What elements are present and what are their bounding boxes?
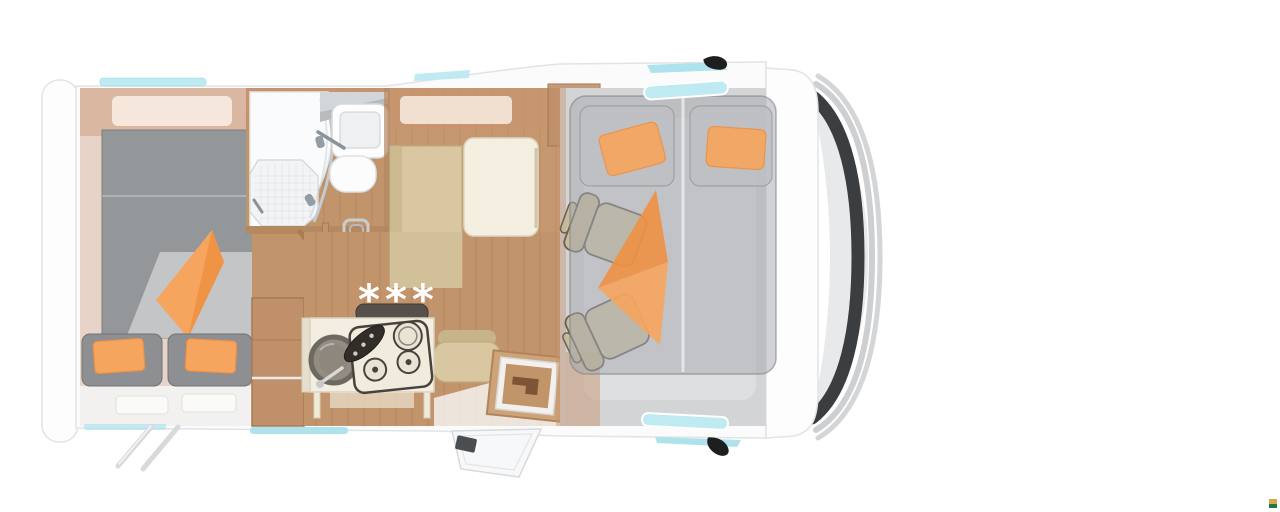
cab-partition-wall <box>556 88 566 426</box>
watermark-badge <box>1269 499 1277 508</box>
pillow-orange-left <box>93 338 145 373</box>
motorhome-floorplan: *** <box>0 0 1280 512</box>
vehicle-front <box>810 76 880 438</box>
window-rear-top <box>100 78 206 86</box>
window-cab-bottom-outer <box>655 437 741 447</box>
support-leg-highlight <box>119 426 151 464</box>
entry-step <box>487 350 567 421</box>
floor-marking: *** <box>358 275 439 324</box>
floorplan-canvas: *** <box>0 0 1280 512</box>
kitchen-lower-panel <box>330 392 414 408</box>
kitchen-faucet-base <box>316 380 324 388</box>
watermark-badge-bottom <box>1269 504 1277 508</box>
wardrobe-corridor <box>252 232 308 426</box>
overcab-drop-down-bed <box>570 96 776 374</box>
floor-rug-left <box>116 396 168 414</box>
wardrobe <box>252 298 304 426</box>
shower-tray <box>250 160 318 226</box>
kitchen-sink-bowl <box>319 345 349 375</box>
window-lounge-bottom <box>250 427 348 434</box>
floor-rug-right <box>182 394 236 412</box>
dinette-window-panel <box>400 96 512 124</box>
toilet-pedestal <box>330 156 376 192</box>
bedroom-window-panel <box>112 96 232 126</box>
pillow-orange-right <box>185 339 237 374</box>
rear-support-legs <box>118 426 178 469</box>
mirror-bottom <box>704 436 731 457</box>
rear-bedroom <box>80 88 256 426</box>
entry-door-open <box>452 429 541 477</box>
rear-wall-cap <box>42 80 78 442</box>
bed-cushion-orange-right <box>706 126 767 170</box>
dinette-table <box>464 138 538 236</box>
cab <box>555 88 776 426</box>
kitchen-leg-left <box>314 392 320 418</box>
washbasin-bowl <box>340 112 380 148</box>
interior <box>80 84 776 426</box>
kitchen-leg-right <box>424 392 430 418</box>
